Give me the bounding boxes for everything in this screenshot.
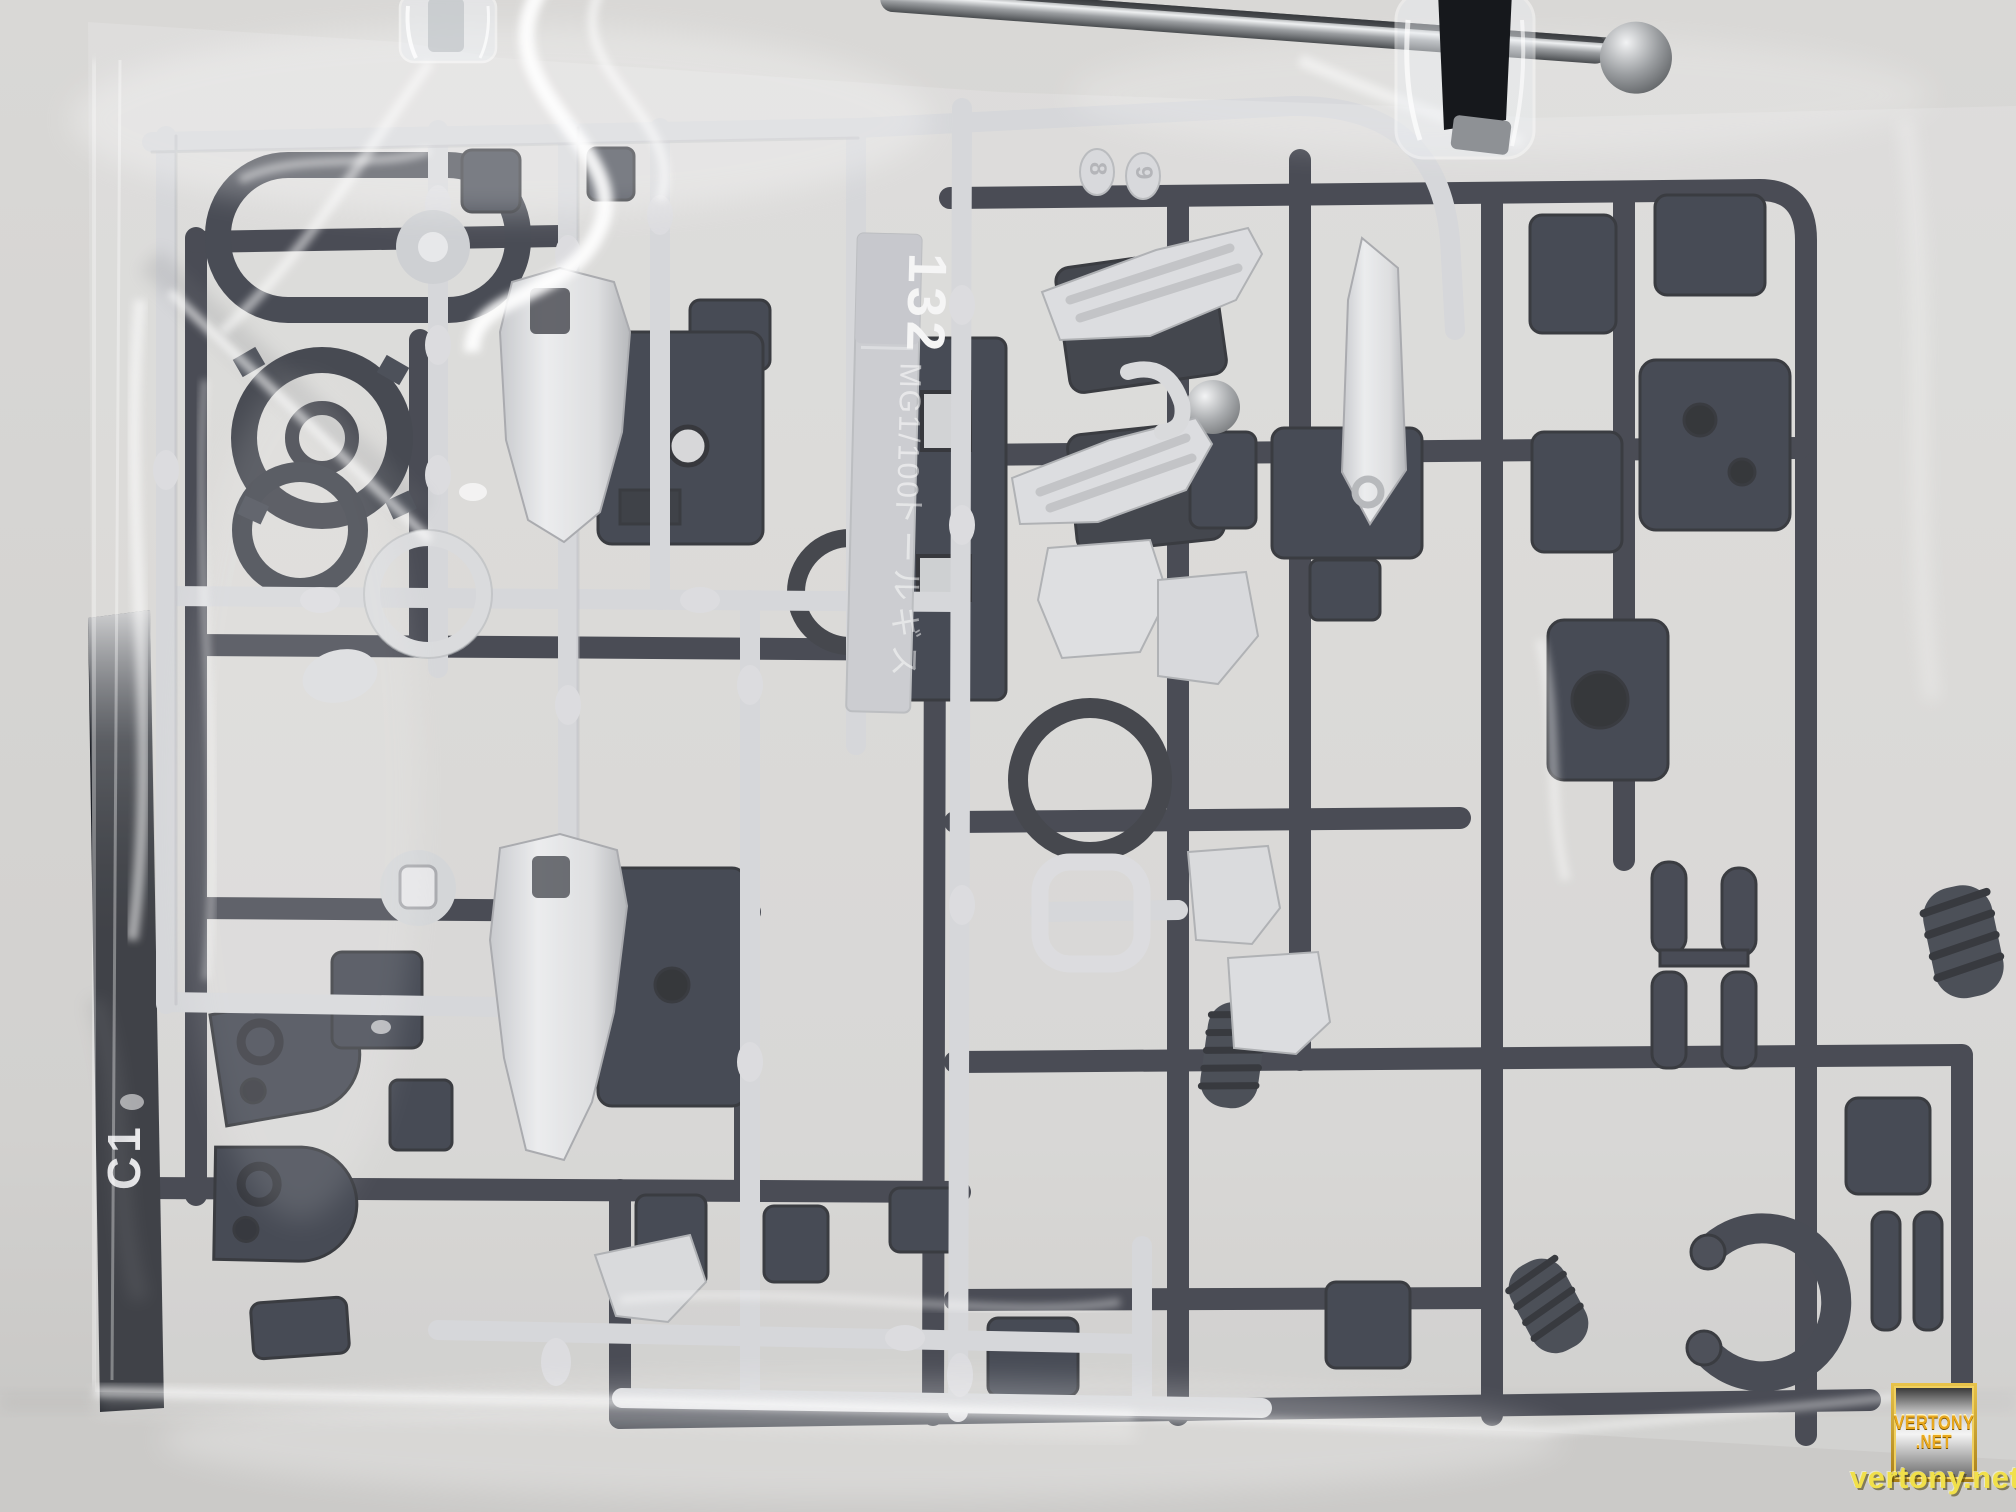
plastic-bag <box>70 0 2016 1500</box>
watermark-badge-top: VERTONY <box>1894 1413 1975 1435</box>
bag-clip-right <box>1396 0 1534 158</box>
bag-clip-center <box>400 0 496 62</box>
photo-canvas: C1 <box>0 0 2016 1512</box>
watermark-url: vertony.net <box>1850 1460 2016 1496</box>
photo-model-kit-runner-in-bag: C1 <box>0 0 2016 1512</box>
watermark-badge-bottom: .NET <box>1916 1432 1952 1452</box>
